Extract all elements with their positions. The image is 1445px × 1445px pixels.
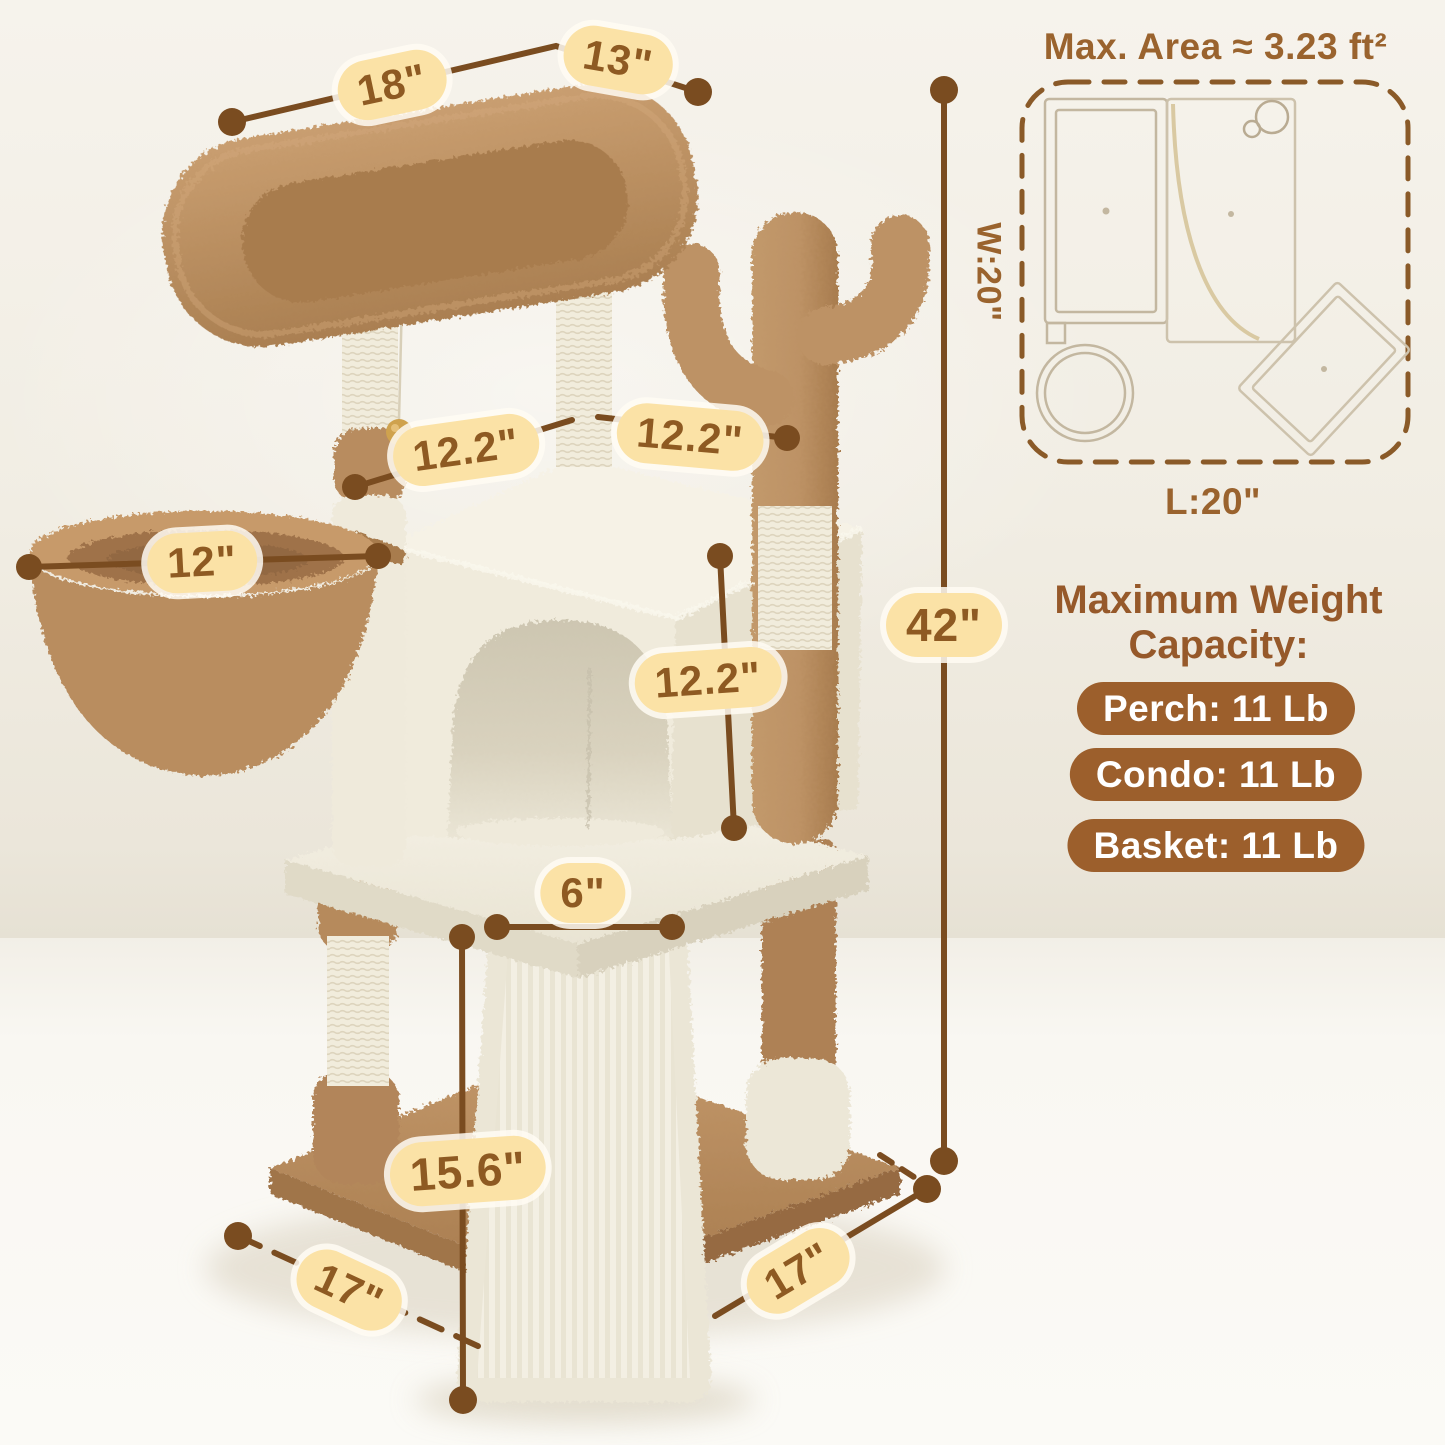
sisal-scratching-post xyxy=(327,936,389,1086)
floorplan-basket-circle-inner xyxy=(1045,353,1125,433)
measurement-label-ramp-width: 6" xyxy=(540,863,625,923)
weight-heading-line1: Maximum Weight xyxy=(1054,578,1382,622)
weight-badge-basket: Basket: 11 Lb xyxy=(1067,819,1364,872)
floorplan-post-circle-small xyxy=(1244,121,1260,137)
floorplan-swing-arc xyxy=(1173,104,1259,339)
floorplan-width-label: W:20" xyxy=(969,222,1008,321)
cactus-sisal-band xyxy=(758,506,832,650)
cat-tree xyxy=(30,69,945,1424)
floorplan-dashed-border xyxy=(1022,82,1408,462)
measurement-label-condo-height: 12.2" xyxy=(633,645,784,715)
cactus-base-cuff xyxy=(746,1058,850,1180)
weight-capacity-heading: Maximum Weight Capacity: xyxy=(986,578,1445,668)
perch-post-right xyxy=(556,282,612,467)
floorplan-footprints xyxy=(1037,99,1410,456)
floorplan-notch xyxy=(1047,323,1065,343)
measurement-label-basket-diameter: 12" xyxy=(146,529,259,595)
weight-badge-condo: Condo: 11 Lb xyxy=(1070,748,1362,801)
measurement-label-ramp-height: 15.6" xyxy=(388,1134,548,1209)
weight-heading-line2: Capacity: xyxy=(1128,623,1308,667)
floorplan-basket-circle xyxy=(1037,345,1133,441)
floorplan-title: Max. Area ≈ 3.23 ft² xyxy=(993,26,1438,68)
measurement-label-total-height: 42" xyxy=(886,593,1002,657)
cat-tree-dimensions-infographic: 18" 13" 12.2" 12.2" 12" 12.2" 6" 15.6" 1… xyxy=(0,0,1445,1445)
toy-ball-highlight xyxy=(391,424,399,432)
post-cuff-bottom xyxy=(313,1070,399,1184)
condo-interior-floor xyxy=(456,818,664,846)
condo-arch-entrance xyxy=(448,620,672,838)
weight-badge-perch: Perch: 11 Lb xyxy=(1077,682,1355,735)
floorplan-drawing xyxy=(1022,82,1410,462)
floorplan-length-label: L:20" xyxy=(1165,481,1261,523)
floorplan-center-dots xyxy=(1103,208,1328,373)
